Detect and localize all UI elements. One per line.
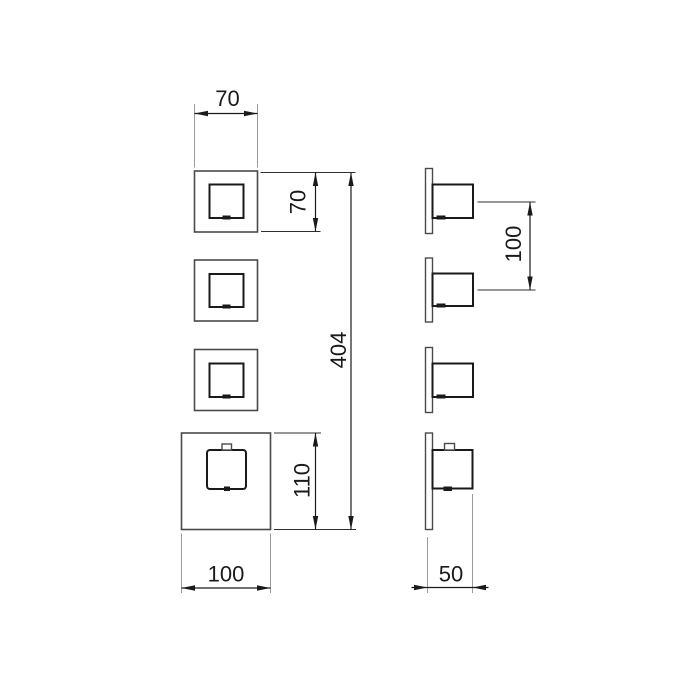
knob-profile — [433, 274, 474, 307]
wall-plate-profile — [426, 258, 433, 322]
dim-label-thermo-height: 110 — [290, 463, 315, 498]
front-trim-plate-2 — [195, 260, 258, 321]
thermo-handle-tab — [222, 444, 232, 450]
knob-profile — [433, 450, 473, 489]
handle-indicator-tick — [223, 395, 231, 399]
valve-handle — [210, 185, 244, 219]
arrowhead — [313, 433, 318, 447]
knob-profile — [433, 364, 474, 398]
wall-plate-profile — [426, 348, 433, 413]
front-trim-plate-3 — [195, 350, 258, 411]
side-valve-2 — [426, 258, 474, 322]
dim-label-overall-height: 404 — [326, 332, 351, 369]
wall-plate-profile — [426, 433, 433, 530]
dim-label-trim-width: 70 — [215, 86, 239, 111]
dim-trim-height: 70 — [261, 173, 356, 232]
dim-thermo-height: 110 — [274, 433, 321, 530]
knob-indicator-tick — [437, 304, 446, 308]
arrowhead — [313, 516, 318, 530]
arrowhead — [313, 218, 318, 232]
knob-profile — [433, 185, 474, 219]
arrowhead — [348, 173, 353, 187]
arrowhead — [527, 277, 532, 291]
dim-label-trim-height: 70 — [286, 190, 311, 214]
arrowhead — [182, 585, 196, 590]
dim-trim-width: 70 — [195, 86, 258, 168]
front-thermostatic-plate — [182, 433, 271, 530]
arrowhead — [257, 585, 271, 590]
arrowhead — [414, 585, 428, 590]
front-trim-plate-1 — [195, 171, 258, 232]
arrowhead — [195, 111, 209, 116]
knob-indicator-tick — [437, 216, 446, 220]
handle-indicator-tick — [224, 487, 230, 492]
handle-indicator-tick — [223, 305, 231, 309]
dim-label-valve-spacing: 100 — [501, 226, 526, 263]
knob-indicator-tick — [437, 395, 446, 399]
handle-indicator-tick — [223, 216, 231, 220]
arrowhead — [473, 585, 487, 590]
thermo-handle — [207, 450, 246, 489]
side-view — [426, 169, 474, 530]
arrowhead — [527, 202, 532, 216]
side-valve-1 — [426, 169, 474, 234]
knob-indicator-tick — [444, 487, 453, 492]
valve-handle — [210, 364, 244, 398]
arrowhead — [348, 516, 353, 530]
technical-drawing: 70 70 404 110 — [0, 0, 700, 700]
drawing-canvas: 70 70 404 110 — [0, 0, 700, 700]
valve-handle — [210, 274, 244, 307]
knob-tab-profile — [445, 444, 455, 451]
dim-depth: 50 — [412, 494, 489, 593]
arrowhead — [313, 173, 318, 187]
dim-valve-spacing: 100 — [478, 202, 536, 290]
side-valve-3 — [426, 348, 474, 413]
dim-thermo-width: 100 — [182, 534, 271, 594]
dim-label-thermo-width: 100 — [208, 562, 245, 587]
front-view — [182, 171, 271, 530]
wall-plate-profile — [426, 169, 433, 234]
dim-label-depth: 50 — [439, 562, 463, 587]
side-thermostatic-valve — [426, 433, 473, 530]
arrowhead — [244, 111, 258, 116]
